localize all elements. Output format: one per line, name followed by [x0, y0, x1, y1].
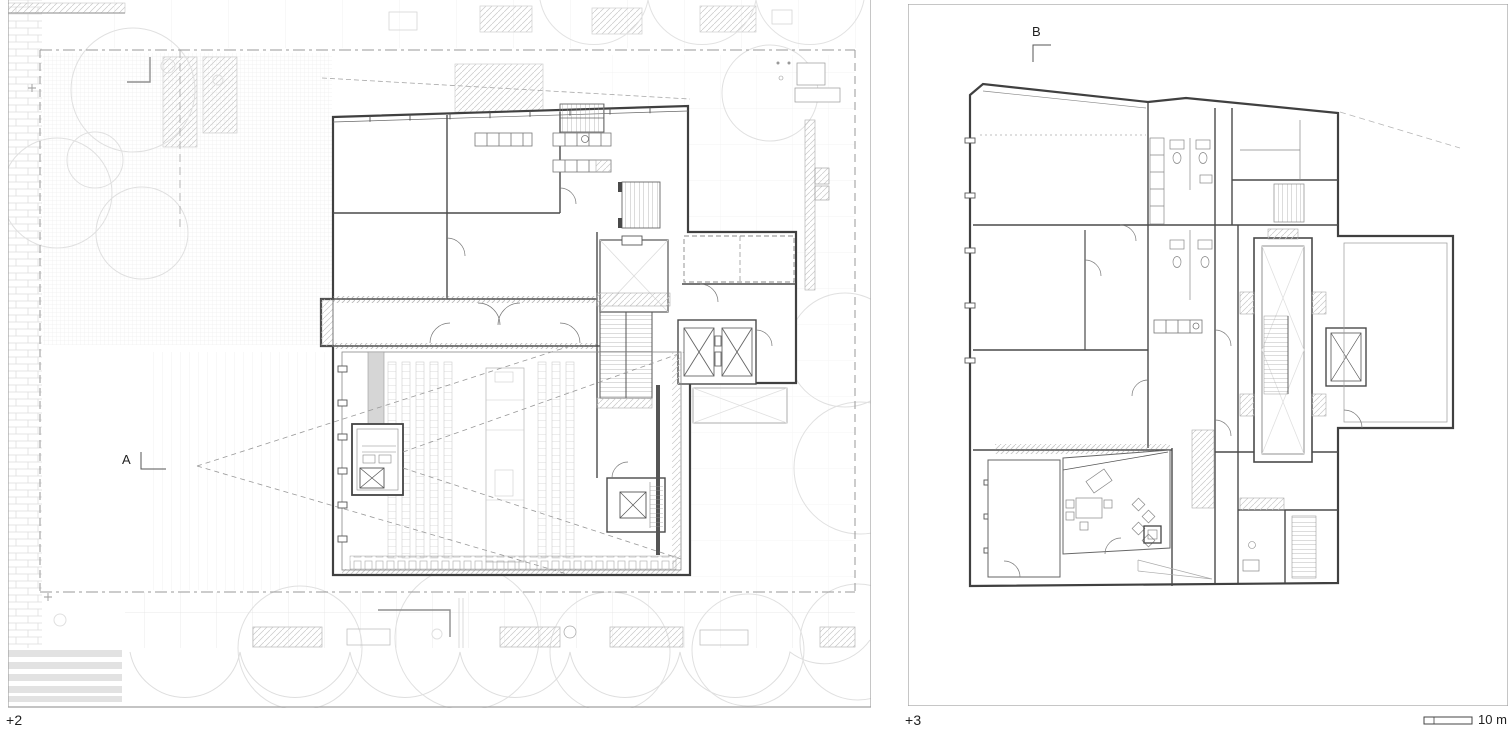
scale-bar-label: 10 m — [1478, 712, 1507, 727]
section-marker-b-label: B — [1032, 24, 1041, 39]
building-level-3 — [965, 84, 1460, 586]
plan-sheet-right — [908, 4, 1508, 706]
section-marker-b-bracket — [1033, 45, 1051, 62]
level-label-plus3: +3 — [905, 712, 921, 728]
plan-sheet-left — [2, 0, 926, 712]
section-marker-a-label: A — [122, 452, 131, 467]
scale-bar — [1424, 717, 1472, 724]
level-label-plus2: +2 — [6, 712, 22, 728]
plan-sheet-drawing — [0, 0, 1512, 735]
